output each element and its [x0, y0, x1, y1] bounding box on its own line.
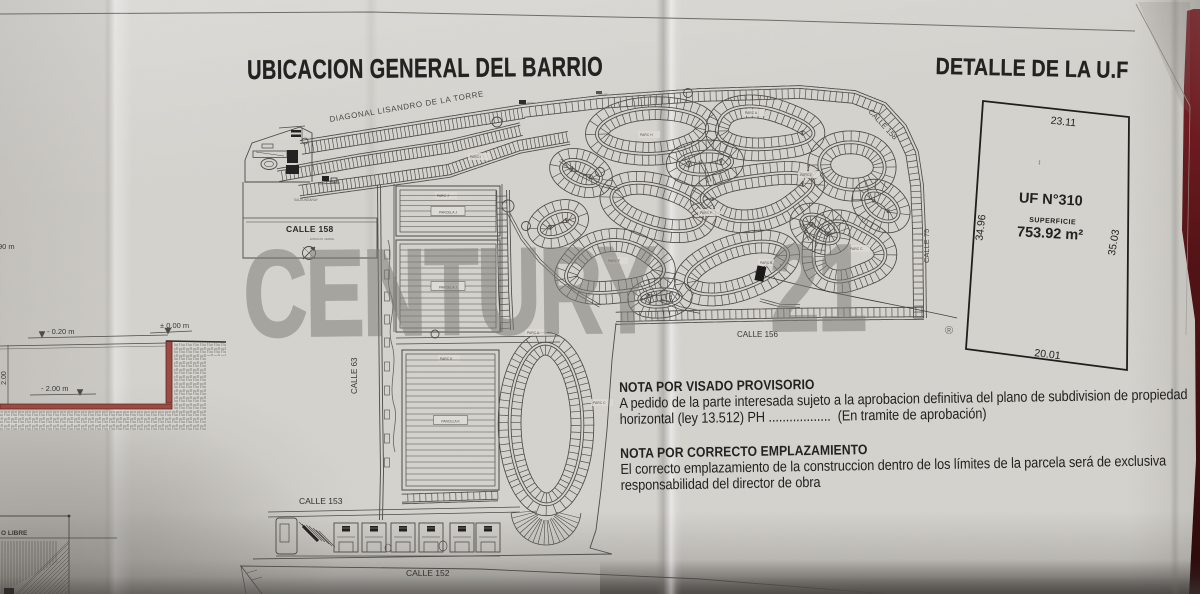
svg-text:®: ®: [945, 325, 953, 337]
svg-text:753.92 m²: 753.92 m²: [1017, 224, 1084, 243]
svg-text:34.96: 34.96: [973, 214, 988, 242]
svg-text:23.11: 23.11: [1050, 115, 1077, 130]
svg-text:UF N°310: UF N°310: [1018, 190, 1083, 209]
svg-text:20.01: 20.01: [1034, 347, 1062, 362]
svg-text:35.03: 35.03: [1106, 228, 1122, 256]
svg-text:↕: ↕: [1038, 159, 1042, 166]
